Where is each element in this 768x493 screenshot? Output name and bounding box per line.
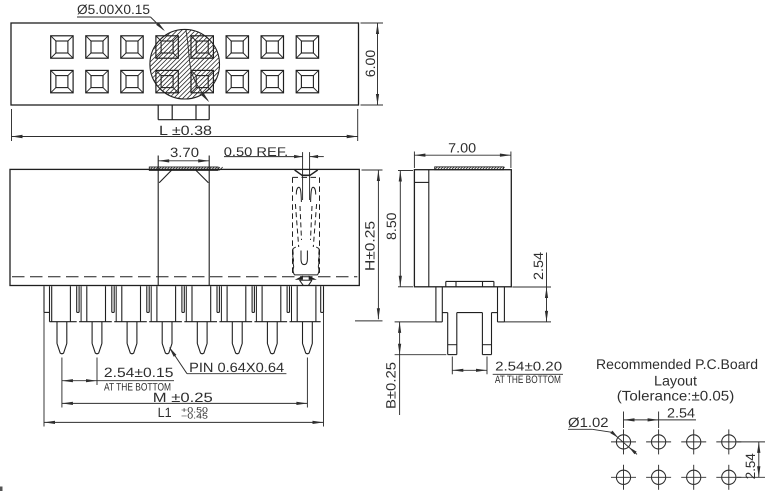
svg-text:2.54±0.20: 2.54±0.20 — [495, 359, 562, 374]
svg-text:H±0.25: H±0.25 — [363, 221, 378, 271]
svg-text:3.70: 3.70 — [170, 145, 199, 160]
svg-text:Ø1.02: Ø1.02 — [568, 415, 609, 430]
svg-text:8.50: 8.50 — [384, 212, 399, 240]
svg-text:L1: L1 — [158, 405, 172, 420]
svg-text:M ±0.25: M ±0.25 — [153, 390, 213, 405]
svg-text:B±0.25: B±0.25 — [384, 362, 399, 409]
svg-text:2.54: 2.54 — [743, 453, 758, 479]
svg-text:Ø5.00X0.15: Ø5.00X0.15 — [77, 2, 150, 17]
svg-text:Recommended P.C.Board: Recommended P.C.Board — [596, 356, 758, 372]
svg-text:2.54: 2.54 — [531, 251, 546, 280]
svg-text:Layout: Layout — [654, 372, 697, 388]
svg-text:2.54: 2.54 — [667, 405, 696, 420]
svg-text:2.54±0.15: 2.54±0.15 — [104, 365, 174, 380]
svg-text:AT THE BOTTOM: AT THE BOTTOM — [495, 374, 561, 386]
svg-text:7.00: 7.00 — [448, 141, 476, 156]
svg-text:0.50 REF.: 0.50 REF. — [224, 145, 289, 159]
svg-text:−0.45: −0.45 — [181, 412, 208, 421]
svg-text:6.00: 6.00 — [363, 50, 378, 78]
svg-text:(Tolerance:±0.05): (Tolerance:±0.05) — [617, 388, 735, 404]
svg-text:L ±0.38: L ±0.38 — [159, 123, 212, 138]
svg-text:PIN 0.64X0.64: PIN 0.64X0.64 — [189, 360, 285, 375]
